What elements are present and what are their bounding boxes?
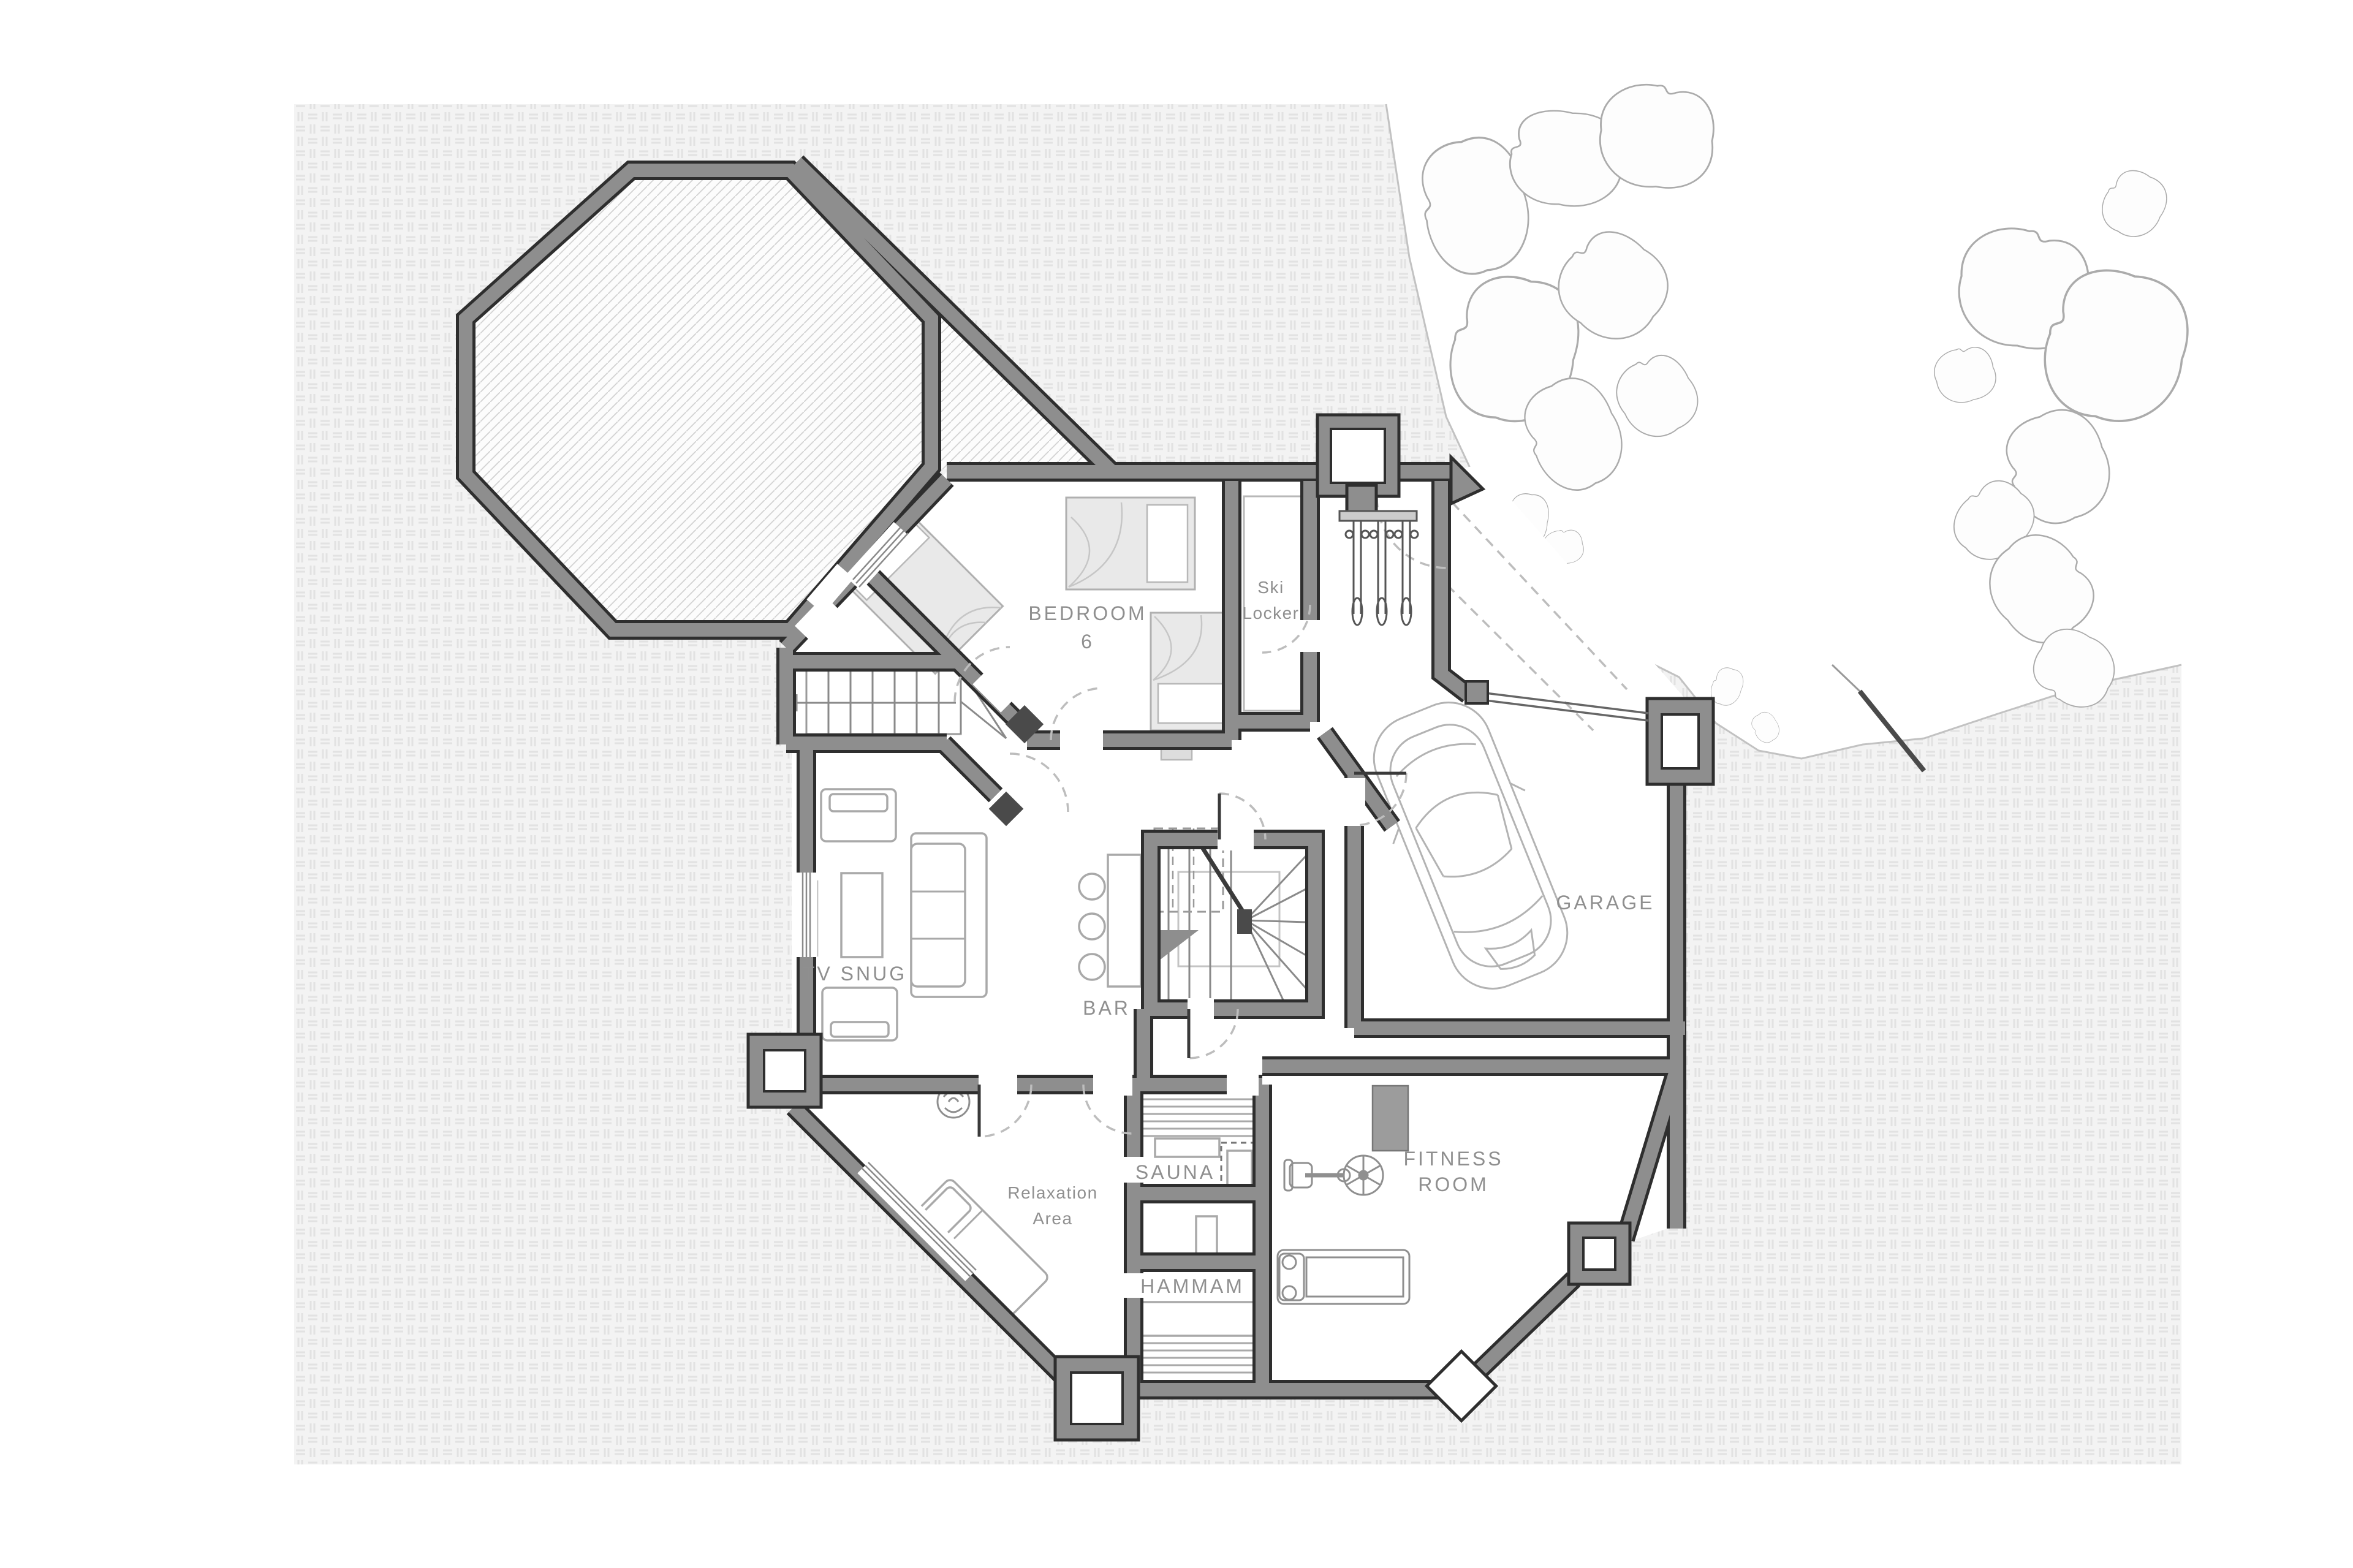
entrance-step — [1347, 485, 1376, 513]
bar-counter — [1108, 855, 1141, 987]
label-hammam: HAMMAM — [1140, 1275, 1245, 1297]
newel-post — [1237, 909, 1252, 934]
label-fitness-line1: FITNESS — [1403, 1148, 1503, 1170]
label-bedroom6-line2: 6 — [1081, 631, 1094, 653]
label-skilocker-line2: Locker — [1242, 604, 1299, 623]
bar-stool — [1079, 874, 1105, 900]
hammam-slab — [1141, 1302, 1257, 1336]
label-skilocker-line1: Ski — [1257, 578, 1284, 597]
label-relaxation-line1: Relaxation — [1007, 1183, 1097, 1202]
label-fitness-line2: ROOM — [1418, 1173, 1489, 1195]
stairs-winder — [1151, 828, 1307, 1001]
bar-stool — [1079, 914, 1105, 939]
label-bar: BAR — [1083, 997, 1131, 1019]
label-bedroom6-line1: BEDROOM — [1028, 602, 1146, 624]
bar-furniture — [1079, 855, 1141, 987]
label-tv-snug: TV SNUG — [803, 963, 907, 985]
label-sauna: SAUNA — [1135, 1161, 1215, 1183]
label-relaxation-line2: Area — [1033, 1209, 1072, 1228]
floor-plan: BEDROOM 6 Ski Locker GARAGE TV SNUG BAR … — [0, 0, 2353, 1568]
coffee-table — [841, 873, 882, 957]
label-garage: GARAGE — [1556, 892, 1655, 914]
sauna-bench — [1155, 1138, 1219, 1157]
bar-stool — [1079, 954, 1105, 980]
bed-horizontal — [1066, 498, 1195, 589]
exercise-mat — [1373, 1086, 1408, 1151]
sofa — [911, 833, 987, 997]
